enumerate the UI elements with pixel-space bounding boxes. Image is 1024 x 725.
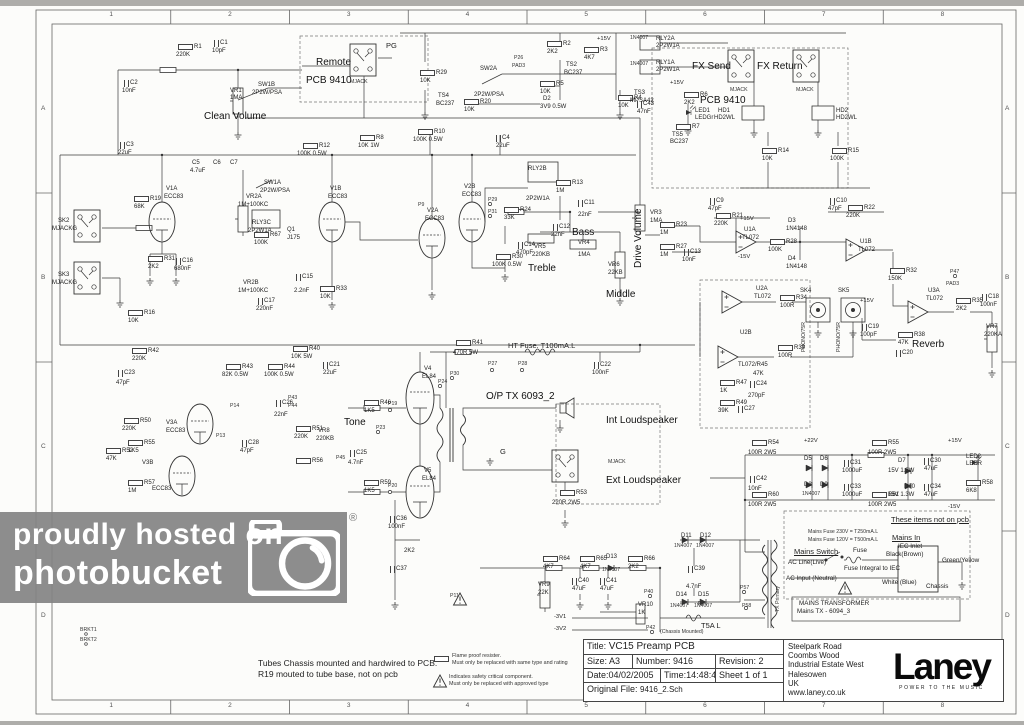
component-label: D4	[788, 256, 796, 262]
component-label: R59	[364, 480, 391, 486]
watermark-line1: proudly hosted on	[13, 518, 283, 552]
component-label: R13	[556, 180, 583, 186]
component-label: R1	[178, 44, 202, 50]
title-label: Title:	[587, 641, 606, 651]
component-label: R30	[496, 254, 523, 260]
component-label: 22nF	[551, 232, 565, 238]
date-cell: Date:04/02/2005	[584, 669, 661, 682]
component-label: 220K	[714, 221, 728, 227]
file-cell: Original File: 9416_2.Sch	[584, 683, 784, 697]
section-label: Int Loudspeaker	[606, 416, 678, 427]
component-label: R55	[128, 440, 155, 446]
component-label: Fuse Integral to IEC	[844, 566, 900, 573]
component-label: R55	[872, 440, 899, 446]
component-label: C42	[750, 476, 767, 483]
component-label: 47uF	[600, 586, 614, 592]
component-label: 100R 2W5	[748, 450, 776, 456]
component-label: D6	[820, 456, 828, 462]
section-label: FX Return	[757, 62, 803, 73]
component-label: SK3	[58, 272, 69, 278]
component-label: C16	[176, 258, 193, 265]
stage: R1220KC110pFC210nFVR11MASW1B2P2W/PSAClea…	[0, 0, 1024, 725]
component-label: VR6	[608, 262, 620, 268]
flame-note: Flame proof resister. Must only be repla…	[434, 653, 568, 667]
component-label: Q1	[287, 227, 295, 233]
component-label: -3V2	[554, 626, 566, 632]
component-label: D8	[804, 482, 812, 488]
component-label: R5	[540, 81, 564, 87]
component-label: R22	[848, 205, 875, 211]
component-label: C4	[496, 135, 510, 142]
component-label: 1N4007	[802, 492, 820, 497]
laney-tagline: POWER TO THE MUSIC	[899, 685, 984, 691]
component-label: C30	[924, 458, 941, 465]
component-label: 220KA	[984, 332, 1002, 338]
component-label: 47K	[898, 340, 909, 346]
component-label: P30	[450, 372, 459, 377]
component-label: SK4	[800, 288, 811, 294]
component-label: 1N4007	[694, 604, 712, 609]
grid-col-label: 2	[228, 702, 232, 709]
component-label: 100R 2W5	[748, 502, 776, 508]
component-label: +15V	[860, 298, 874, 304]
component-label: T5A L	[701, 622, 721, 630]
component-label: 10K	[420, 78, 431, 84]
component-label: C20	[896, 350, 913, 357]
component-label: P28	[518, 362, 527, 367]
title-row: Title: VC15 Preamp PCB	[584, 640, 784, 654]
component-label: P29	[488, 198, 497, 203]
component-label: VR4	[578, 240, 590, 246]
component-label: P14	[230, 404, 239, 409]
component-label: D7	[898, 458, 906, 464]
component-label: C40	[572, 578, 589, 585]
component-label: 2K2	[404, 548, 415, 554]
component-label: R29	[420, 70, 447, 76]
component-label: 47pF	[828, 206, 842, 212]
component-label: 2K2	[956, 306, 967, 312]
component-label: +15V	[740, 216, 754, 222]
component-label: 1N4007	[670, 604, 688, 609]
component-label: 1K5	[128, 448, 139, 454]
component-label: R32	[890, 268, 917, 274]
component-label: R31	[148, 256, 175, 262]
component-label: MAINS TRANSFORMER	[799, 601, 869, 608]
component-label: 22nF	[578, 212, 592, 218]
component-label: P24	[438, 380, 447, 385]
grid-row-label: A	[1005, 105, 1009, 112]
grid-col-label: 4	[466, 702, 470, 709]
chassis-note-line1: Tubes Chassis mounted and hardwired to P…	[258, 658, 437, 669]
component-label: 100R 2W5	[868, 450, 896, 456]
grid-col-label: 7	[822, 702, 826, 709]
number-cell: Number: 9416	[633, 655, 716, 668]
component-label: C39	[688, 566, 705, 573]
grid-col-label: 1	[109, 702, 113, 709]
component-label: P42	[646, 626, 655, 631]
component-label: R27	[660, 244, 687, 250]
laney-logo-text: Laney	[893, 650, 990, 683]
component-label: 47K	[753, 371, 764, 377]
component-label: C10	[830, 198, 847, 205]
component-label: U1A	[744, 227, 756, 233]
component-label: 2P2W1A	[656, 67, 680, 73]
component-label: PAD3	[946, 282, 959, 287]
component-label: MJACK	[350, 80, 368, 85]
component-label: R2	[547, 41, 571, 47]
component-label: 39K	[718, 408, 729, 414]
component-label: 10K	[540, 89, 551, 95]
component-label: ECC83	[164, 194, 183, 200]
component-label: U1B	[860, 239, 872, 245]
component-label: R21	[716, 213, 743, 219]
component-label: Mains Fuse 230V = T250mA.L	[808, 530, 878, 535]
section-label: Treble	[528, 264, 556, 275]
component-label: 100pF	[860, 332, 877, 338]
component-label: R28	[770, 239, 797, 245]
component-label: TS3	[634, 90, 645, 96]
component-label: TS4	[438, 93, 449, 99]
component-label: C28	[242, 440, 259, 447]
component-label: D2	[543, 96, 551, 102]
component-label: 1N4148	[786, 226, 807, 232]
component-label: PG	[386, 42, 397, 50]
component-label: 2K2	[628, 564, 639, 570]
component-label: V1B	[330, 186, 341, 192]
component-label: C14	[518, 242, 535, 249]
component-label: Mains Fuse 120V = T500mA.L	[808, 538, 878, 543]
section-label: Remote	[316, 58, 351, 69]
component-label: R46	[364, 400, 391, 406]
grid-col-label: 6	[703, 702, 707, 709]
section-label: PCB 9410	[700, 96, 746, 107]
component-label: TL072	[754, 294, 771, 300]
component-label: R66	[628, 556, 655, 562]
component-label: -15V	[948, 504, 960, 510]
component-label: R16	[128, 310, 155, 316]
component-label: EL84	[422, 476, 436, 482]
component-label: 10pF	[212, 48, 226, 54]
component-label: VR3	[650, 210, 662, 216]
component-label: ECC83	[166, 428, 185, 434]
component-label: BC237	[436, 101, 454, 107]
component-label: V2B	[464, 184, 475, 190]
grid-col-label: 4	[466, 11, 470, 18]
component-label: VR10	[638, 602, 653, 608]
component-label: P44	[288, 404, 297, 409]
component-label: BC237	[670, 139, 688, 145]
component-label: 10K	[618, 103, 629, 109]
safety-note-line2: Must only be replaced with approved type	[449, 681, 549, 687]
component-label: 1000uF	[842, 492, 862, 498]
component-label: RLY2A	[656, 36, 675, 42]
component-label: VR2A	[246, 194, 262, 200]
grid-col-label: 8	[941, 11, 945, 18]
flame-note-line1: Flame proof resister.	[452, 653, 501, 659]
component-label: P20	[388, 484, 397, 489]
component-label: ECC83	[425, 216, 444, 222]
section-label: PCB 9410	[306, 76, 352, 87]
section-label: Tone	[344, 418, 366, 429]
component-label: R56	[296, 458, 323, 464]
component-label: P40	[644, 590, 653, 595]
component-label: 100nF	[388, 524, 405, 530]
component-label: D12	[700, 533, 711, 539]
component-label: D11	[681, 533, 692, 539]
component-label: TS5	[672, 132, 683, 138]
section-label: Reverb	[912, 340, 944, 351]
component-label: 1M	[556, 188, 564, 194]
component-label: R3	[584, 47, 608, 53]
component-label: R42	[132, 348, 159, 354]
component-label: Black(Brown)	[886, 552, 923, 559]
component-label: R58	[966, 480, 993, 486]
component-label: 1K5	[364, 488, 375, 494]
laney-logo: Laney POWER TO THE MUSIC	[880, 640, 1003, 701]
grid-row-label: C	[1005, 443, 1010, 450]
component-label: C18	[982, 294, 999, 301]
component-label: VR2B	[243, 280, 259, 286]
grid-col-label: 5	[584, 702, 588, 709]
component-label: R65	[580, 556, 607, 562]
component-label: 47pF	[116, 380, 130, 386]
component-label: 4.7nF	[348, 460, 363, 466]
component-label: TL072	[742, 235, 759, 241]
component-label: 22uF	[118, 150, 132, 156]
component-label: 4K7	[584, 55, 595, 61]
component-label: R40	[293, 346, 320, 352]
component-label: 150K	[888, 276, 902, 282]
component-label: C21	[323, 362, 340, 369]
component-label: 47uF	[924, 492, 938, 498]
component-label: LEDGr	[695, 115, 713, 121]
component-label: R35	[956, 298, 983, 304]
grid-col-label: 3	[347, 702, 351, 709]
component-label: 10K	[128, 318, 139, 324]
component-label: R54	[752, 440, 779, 446]
component-label: R47	[720, 380, 747, 386]
component-label: D15	[698, 592, 709, 598]
component-label: 47uF	[924, 466, 938, 472]
component-label: R43	[226, 364, 253, 370]
component-label: TS2	[566, 62, 577, 68]
flame-note-line2: Must only be replaced with same type and…	[452, 660, 568, 666]
component-label: R23	[660, 222, 687, 228]
component-label: 100nF	[592, 370, 609, 376]
component-label: 82K 0.5W	[222, 372, 248, 378]
component-label: 2P2W1A	[656, 43, 680, 49]
component-label: AC Line(Live)	[788, 560, 826, 567]
component-label: V5	[424, 468, 431, 474]
grid-col-label: 1	[109, 11, 113, 18]
component-label: P11	[450, 594, 459, 599]
component-label: MJACKG	[52, 226, 77, 232]
size-cell: Size: A3	[584, 655, 633, 668]
component-label: HD1	[718, 108, 730, 114]
component-label: V4	[424, 366, 431, 372]
component-label: Chassis	[926, 584, 948, 591]
component-label: 220KB	[316, 436, 334, 442]
component-label: TL072/R45	[738, 362, 768, 368]
component-label: R50	[124, 418, 151, 424]
component-label: 68K	[134, 204, 145, 210]
component-label: ECC83	[152, 486, 171, 492]
grid-col-label: 6	[703, 11, 707, 18]
component-label: White (Blue)	[882, 580, 917, 587]
component-label: 270pF	[748, 393, 765, 399]
component-label: R8	[360, 135, 384, 141]
component-label: 100R 2W5	[868, 502, 896, 508]
grid-col-label: 8	[941, 702, 945, 709]
component-label: C15	[296, 274, 313, 281]
component-label: P23	[376, 426, 385, 431]
component-label: SW1A	[264, 180, 281, 186]
registered-mark: ®	[349, 512, 357, 524]
component-label: V3B	[142, 460, 153, 466]
component-label: -15V	[738, 254, 750, 260]
component-label: 100K	[254, 240, 268, 246]
component-label: C9	[710, 198, 724, 205]
component-label: 680nF	[174, 266, 191, 272]
component-label: C3	[120, 142, 134, 149]
component-label: C11	[578, 200, 595, 207]
component-label: BRKT2	[80, 638, 97, 643]
component-label: IEC Inlet	[898, 544, 922, 551]
component-label: D14	[676, 592, 687, 598]
grid-row-label: B	[41, 274, 45, 281]
component-label: 220nF	[256, 306, 273, 312]
time-cell: Time:14:48:45	[661, 669, 716, 682]
component-label: U2B	[740, 330, 752, 336]
component-label: P13	[216, 434, 225, 439]
component-label: C33	[844, 484, 861, 491]
component-label: R53	[560, 490, 587, 496]
component-label: 100K	[830, 156, 844, 162]
component-label: Mains In	[892, 534, 920, 542]
component-label: P9	[418, 203, 424, 208]
grid-col-label: 5	[584, 11, 588, 18]
component-label: R24	[504, 207, 531, 213]
component-label: 100K 0.5W	[297, 151, 327, 157]
component-label: 220K	[132, 356, 146, 362]
component-label: C37	[390, 566, 407, 573]
component-label: R10	[418, 129, 445, 135]
component-label: 4.7uF	[190, 168, 205, 174]
component-label: 15V 1.3W	[888, 468, 914, 474]
component-label: 47uF	[572, 586, 586, 592]
component-label: R60	[752, 492, 779, 498]
component-label: 10K	[762, 156, 773, 162]
component-label: D5	[804, 456, 812, 462]
grid-row-label: C	[41, 443, 46, 450]
company-address: Steelpark Road Coombs Wood Industrial Es…	[784, 640, 880, 701]
component-label: U3A	[928, 288, 940, 294]
grid-row-label: D	[1005, 612, 1010, 619]
component-label: 1M	[660, 230, 668, 236]
watermark-line2: photobucket	[13, 554, 222, 593]
section-label: Middle	[606, 290, 635, 301]
annotation-layer: R1220KC110pFC210nFVR11MASW1B2P2W/PSAClea…	[0, 0, 1024, 725]
component-label: EL84	[422, 374, 436, 380]
component-label: P58	[742, 604, 751, 609]
component-label: C27	[738, 406, 755, 413]
component-label: P57	[740, 586, 749, 591]
component-label: C31	[844, 460, 861, 467]
chassis-note-line2: R19 mouted to tube base, not on pcb	[258, 669, 437, 680]
component-label: 100K 0.5W	[413, 137, 443, 143]
component-label: PHONO/75R	[837, 322, 842, 352]
component-label: 100K 0.5W	[264, 372, 294, 378]
component-label: These items not on pcb	[891, 516, 969, 524]
component-label: R33	[320, 286, 347, 292]
chassis-note: Tubes Chassis mounted and hardwired to P…	[258, 658, 437, 681]
component-label: 10K	[464, 107, 475, 113]
component-label: R57	[128, 480, 155, 486]
component-label: +15V	[597, 36, 611, 42]
component-label: 220KB	[532, 252, 550, 258]
component-label: V2A	[427, 208, 438, 214]
component-label: G	[500, 448, 506, 456]
component-label: 10K 1W	[358, 143, 379, 149]
sheet-cell: Sheet 1 of 1	[716, 669, 784, 682]
component-label: LED2	[966, 454, 981, 460]
component-label: -3V1	[554, 614, 566, 620]
component-label: 2K2	[547, 49, 558, 55]
component-label: LED1	[695, 108, 710, 114]
component-label: 10nF	[122, 88, 136, 94]
grid-row-label: D	[41, 612, 46, 619]
component-label: D10	[904, 484, 915, 490]
component-label: VR8	[318, 428, 330, 434]
component-label: P19	[388, 402, 397, 407]
component-label: P27	[488, 362, 497, 367]
component-label: P26	[514, 56, 523, 61]
component-label: TX Primary	[776, 586, 781, 612]
component-label: R14	[762, 148, 789, 154]
component-label: R7	[676, 124, 700, 130]
component-label: SK2	[58, 218, 69, 224]
section-label: Ext Loudspeaker	[606, 476, 681, 487]
component-label: C7	[230, 160, 238, 166]
grid-col-label: 2	[228, 11, 232, 18]
grid-row-label: A	[41, 105, 45, 112]
component-label: 4K7	[543, 564, 554, 570]
component-label: 1N4007	[630, 62, 648, 67]
component-label: 1N4007	[630, 36, 648, 41]
component-label: C22	[594, 362, 611, 369]
component-label: C5	[192, 160, 200, 166]
component-label: 1M	[660, 252, 668, 258]
component-label: 220K	[294, 434, 308, 440]
component-label: 2P2W1A	[248, 228, 272, 234]
component-label: 1K	[720, 388, 727, 394]
component-label: 15V 1.3W	[888, 492, 914, 498]
component-label: HD2	[836, 108, 848, 114]
flameproof-resistor-icon	[434, 656, 449, 662]
component-label: (Chassis Mounted)	[660, 630, 704, 635]
title-block: Title: VC15 Preamp PCB Size: A3 Number: …	[583, 639, 785, 702]
component-label: AC Input (Neutral)	[786, 576, 837, 583]
component-label: 1M	[128, 488, 136, 494]
component-label: P31	[488, 210, 497, 215]
revision-cell: Revision: 2	[716, 655, 784, 668]
component-label: ECC83	[462, 192, 481, 198]
component-label: 470R 5W	[453, 350, 478, 356]
component-label: 2.2nF	[294, 288, 309, 294]
safety-note-line1: Indicates safety critical component.	[449, 674, 533, 680]
component-label: 1000uF	[842, 468, 862, 474]
component-label: Mains Switch	[794, 548, 838, 556]
